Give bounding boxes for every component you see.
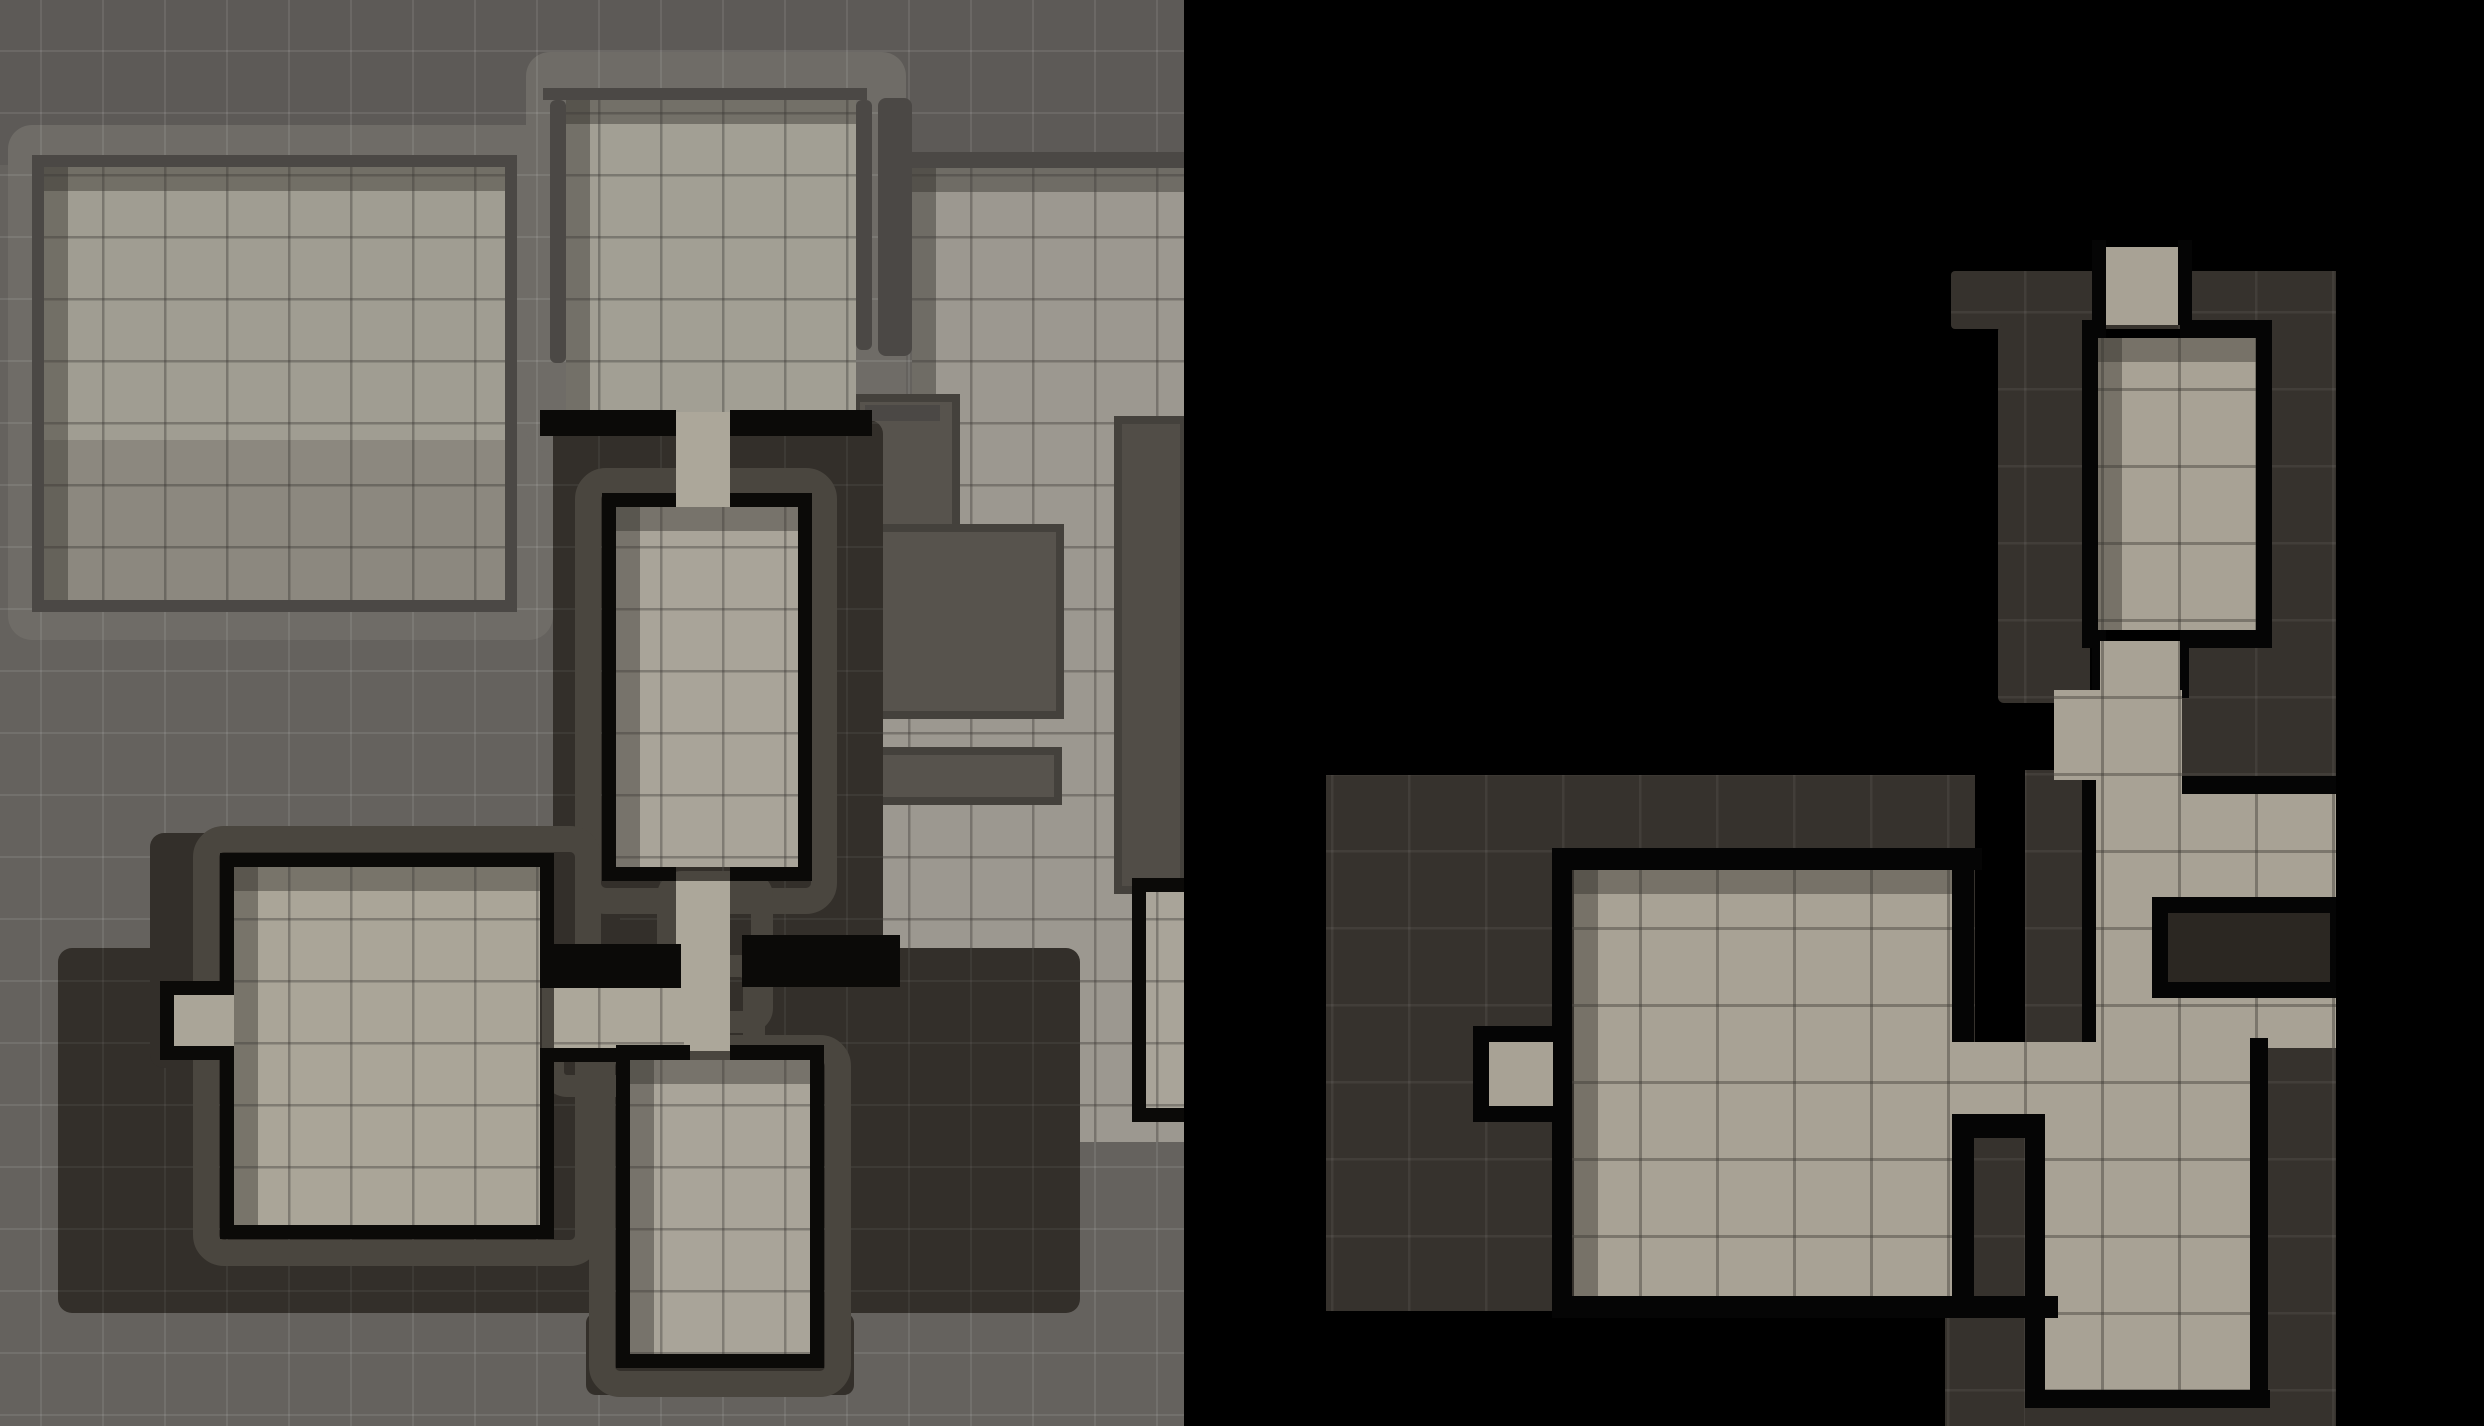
room2-floor-grid [566, 100, 856, 412]
room4-wall-bottom-left [602, 867, 676, 881]
dungeon-map-svg[interactable] [0, 0, 2484, 1426]
revealed-rock-mid-east-grid [2182, 641, 2338, 791]
room1-wall-right [505, 155, 517, 612]
fogged-corridor-strip [1118, 420, 1184, 890]
fogged-room-lower [856, 528, 1060, 715]
revealed-rock-bottom [2025, 1406, 2270, 1426]
room2-wall-right [856, 100, 872, 350]
east-alcove-wall-bottom [1132, 1108, 1184, 1122]
south-room-wall-right [2250, 1038, 2268, 1408]
room1-fog-dim [44, 440, 505, 600]
passage-floor-grid [554, 988, 684, 1048]
player-room5-nub-floor [1489, 1042, 1553, 1106]
room4-wall-bottom-right [730, 867, 812, 881]
corridor4-6-floor [676, 881, 730, 1051]
room6-wall-top-right [730, 1045, 824, 1060]
revealed-rock-low-east-grid [2263, 1040, 2336, 1426]
room6-wall-left [616, 1045, 630, 1368]
corridor-north-wall-left [2092, 240, 2106, 325]
revealed-rock-flank-east-grid [2266, 325, 2340, 693]
player-room5-wall-right-lower [1952, 1114, 1974, 1318]
room2-wall-left [550, 100, 566, 363]
room5-wall-bottom [220, 1225, 554, 1239]
corridor2-4-floor [676, 412, 730, 512]
player-room5-wall-top [1552, 848, 1982, 870]
vision-wall-bar-east [730, 410, 872, 436]
east-alcove-floor-grid [1146, 892, 1184, 1108]
east-hall-wall-top [912, 152, 1184, 168]
vision-wall-bar-west [540, 410, 676, 436]
player-map-panel [1184, 0, 2484, 1426]
room4-wall-right [798, 493, 812, 881]
vtt-canvas[interactable] [0, 0, 2484, 1426]
tall-room-wall-bottom-right [2180, 630, 2272, 648]
player-room5-wall-bottom [1552, 1296, 2058, 1318]
tall-room-wall-left [2082, 320, 2098, 646]
player-room5-wall-right-upper [1952, 848, 1974, 1042]
east-alcove-wall-top [1132, 878, 1184, 892]
room5-floor-grid [234, 867, 540, 1225]
room1-wall-left [32, 155, 44, 612]
room5-wall-right-upper [540, 853, 554, 988]
south-room-wall-left [2025, 1114, 2045, 1406]
room2-wall-stub-east [865, 405, 940, 421]
fogged-wall-bar [859, 751, 1058, 801]
room4-wall-left [602, 493, 616, 881]
fog-of-war-east-edge [2336, 0, 2484, 1426]
east-alcove-wall-left [1132, 878, 1146, 1122]
room5-wall-top [220, 853, 554, 867]
wall-chunk-passage-top [545, 944, 681, 988]
room6-wall-bottom [616, 1354, 824, 1368]
passage-floor-player-grid [1950, 1042, 2098, 1114]
tall-room-wall-right [2256, 320, 2272, 646]
room2-wall-top [543, 88, 867, 100]
room1-wall-bottom [32, 600, 517, 612]
wall-chunk-corridor-east [742, 935, 900, 987]
player-room5-nub-bottom [1473, 1106, 1553, 1122]
south-room-wall-bottom [2025, 1390, 2270, 1408]
room5-wall-right-lower [540, 1048, 554, 1239]
corridor-north-floor [2106, 247, 2178, 325]
junction-wall-west [2082, 780, 2096, 1042]
room5-door-nub-floor [174, 995, 234, 1046]
junction-wall-top-east [2182, 776, 2338, 794]
player-room5-floor-grid [1574, 870, 1952, 1296]
room6-floor-grid [630, 1060, 810, 1354]
wall-below-passage [543, 1048, 618, 1062]
player-room5-wall-left [1552, 848, 1572, 1318]
wall-pit-block [2160, 905, 2338, 990]
room4-floor-grid [616, 507, 798, 867]
east-hall-wall-left [878, 98, 912, 356]
room6-wall-right [810, 1045, 824, 1368]
tall-room-floor-grid [2098, 338, 2256, 630]
room1-wall-top [32, 155, 517, 167]
revealed-rock-flank-west-grid [1998, 325, 2090, 703]
corridor-north-wall-right [2178, 240, 2192, 325]
room5-door-nub-bottom [160, 1046, 227, 1060]
gm-map-panel [0, 0, 1184, 1426]
